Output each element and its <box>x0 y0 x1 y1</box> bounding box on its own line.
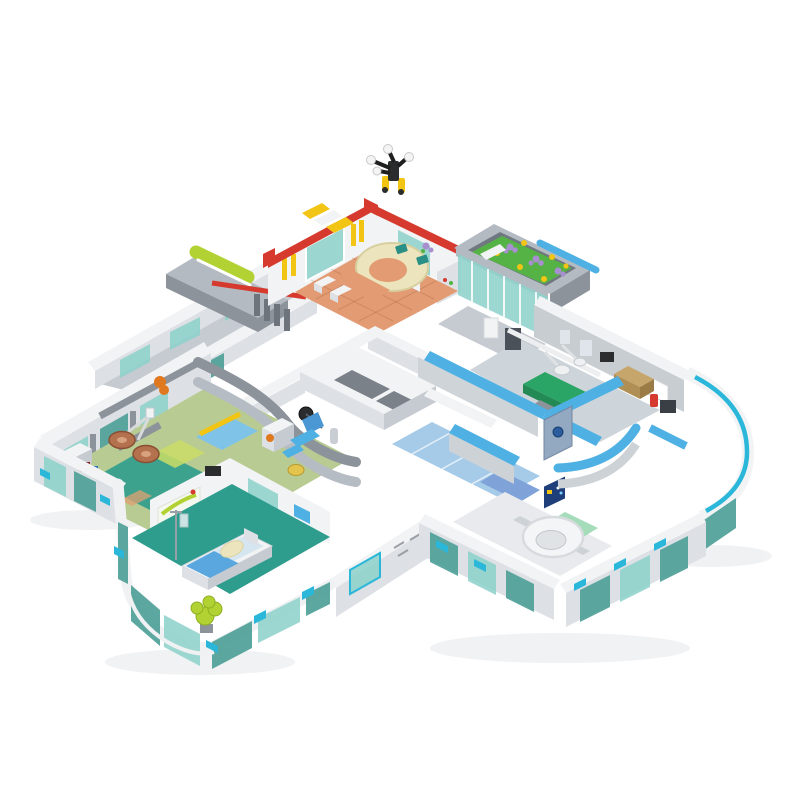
right-wing <box>392 296 754 627</box>
lime-plant <box>191 596 222 633</box>
sterilizer <box>660 400 676 413</box>
gas-tank <box>330 428 338 444</box>
yellow-ladder <box>282 258 287 280</box>
wall-monitor <box>600 352 614 362</box>
scene: Brick-built modular hospital playset, ae… <box>0 0 800 800</box>
flower-vase <box>423 243 430 250</box>
dentist-stool <box>288 465 304 476</box>
inner-corner-wall <box>330 518 431 617</box>
drone-figure <box>367 145 414 196</box>
tv-screen <box>205 466 221 476</box>
hospital-model-photo: Brick-built modular hospital playset, ae… <box>0 0 800 800</box>
fire-extinguisher <box>650 394 658 407</box>
